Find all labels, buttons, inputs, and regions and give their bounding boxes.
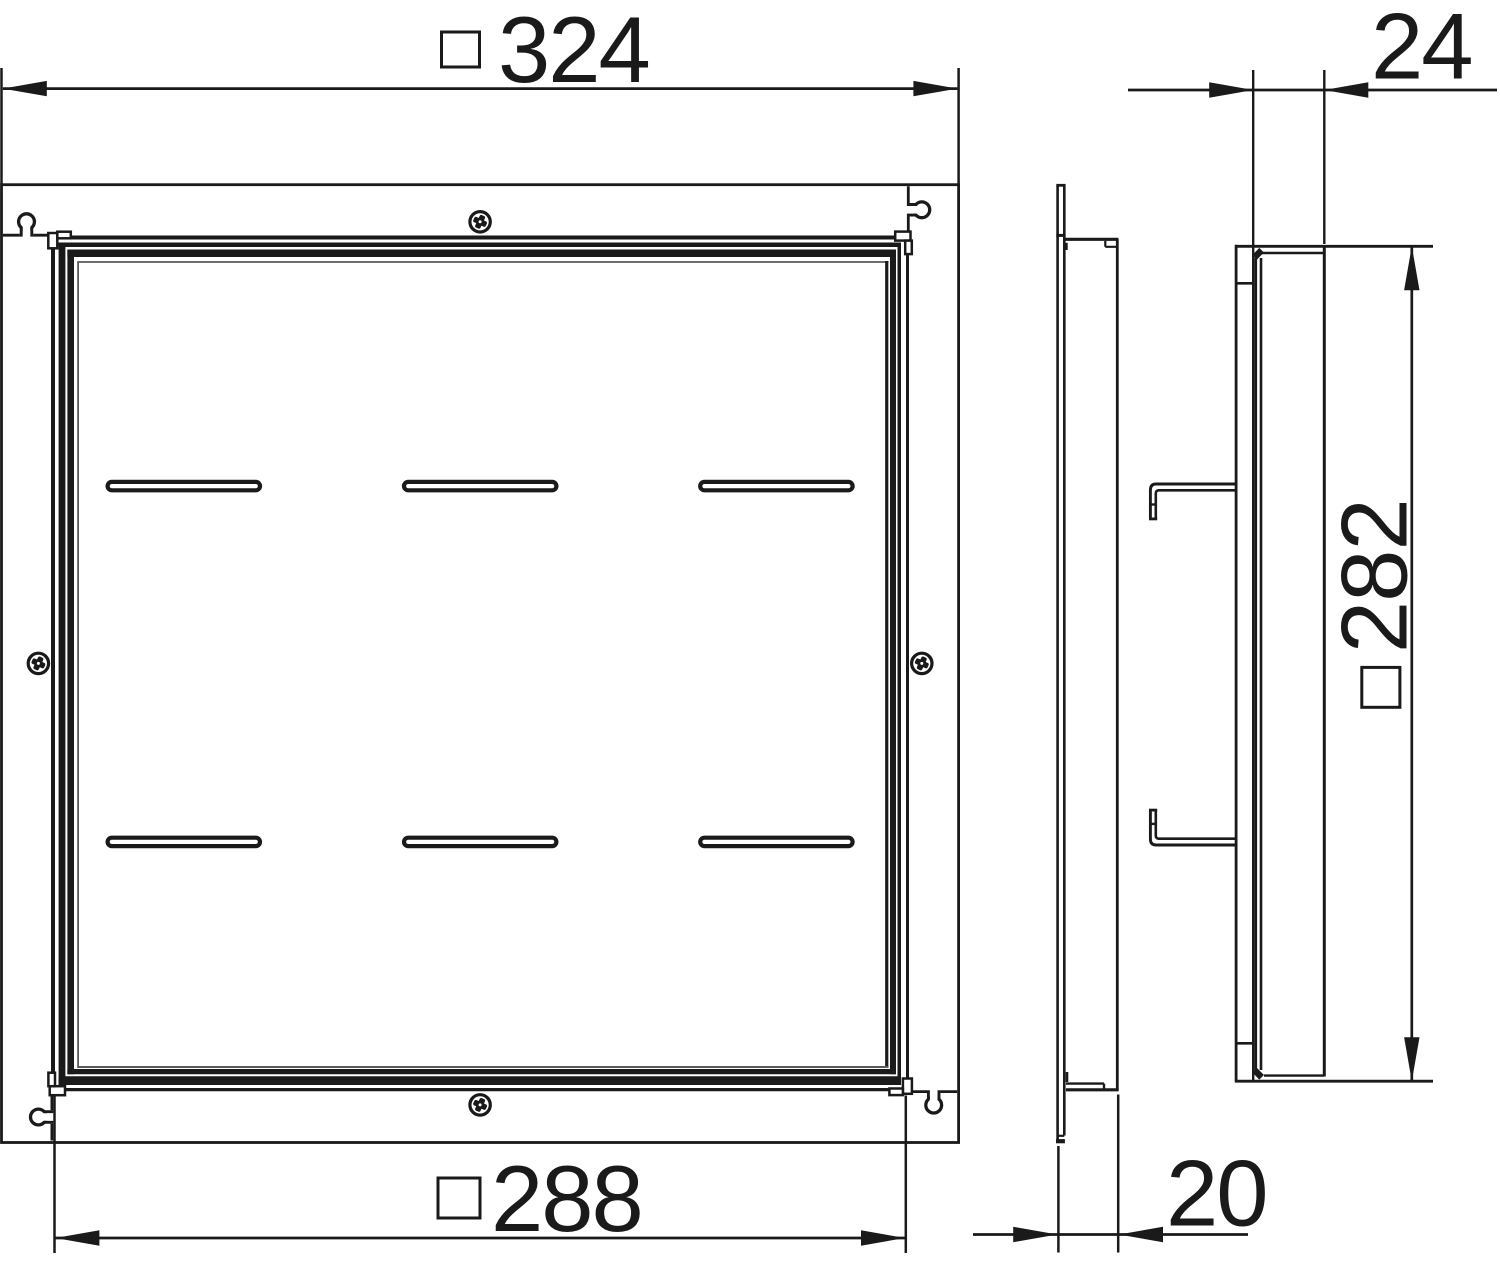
svg-text:324: 324 bbox=[498, 0, 649, 102]
svg-text:282: 282 bbox=[1322, 499, 1427, 653]
svg-text:24: 24 bbox=[1371, 0, 1472, 99]
svg-text:20: 20 bbox=[1166, 1140, 1267, 1245]
svg-text:288: 288 bbox=[491, 1146, 642, 1251]
